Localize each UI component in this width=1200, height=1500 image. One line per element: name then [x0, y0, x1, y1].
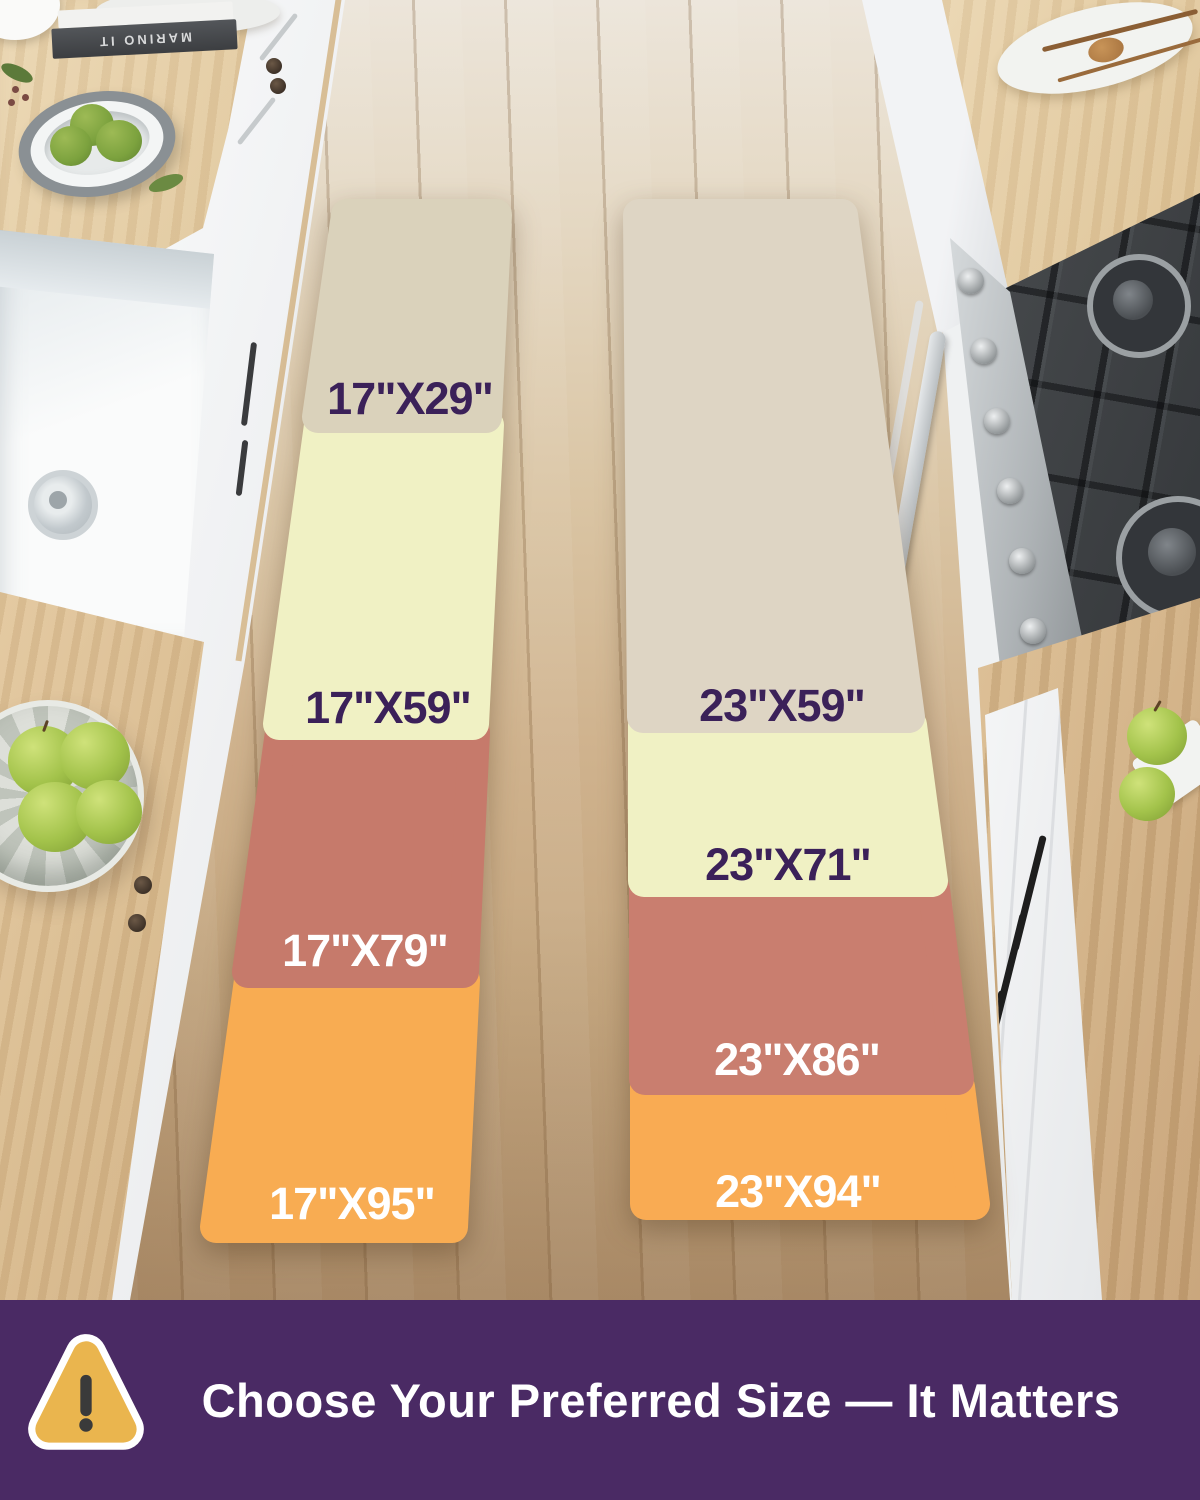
size-label-17x95: 17"X95"	[269, 1178, 435, 1230]
size-label-23x86: 23"X86"	[714, 1034, 880, 1086]
size-chart-runners	[0, 0, 1200, 1300]
size-label-17x29: 17"X29"	[327, 373, 493, 425]
size-label-17x59: 17"X59"	[305, 682, 471, 734]
right-runner-section-59	[639, 215, 909, 717]
size-label-23x71: 23"X71"	[705, 839, 871, 891]
size-label-23x59: 23"X59"	[699, 680, 865, 732]
kitchen-size-chart-image: MARINO IT	[0, 0, 1200, 1500]
banner-text-wrap: Choose Your Preferred Size — It Matters	[150, 1300, 1172, 1500]
banner-text: Choose Your Preferred Size — It Matters	[202, 1373, 1121, 1428]
exclamation-dot	[79, 1418, 92, 1431]
size-label-17x79: 17"X79"	[282, 925, 448, 977]
bottom-banner: Choose Your Preferred Size — It Matters	[0, 1300, 1200, 1500]
size-label-23x94: 23"X94"	[715, 1166, 881, 1218]
left-runner-section-59	[279, 425, 488, 724]
warning-triangle-icon	[24, 1332, 148, 1456]
